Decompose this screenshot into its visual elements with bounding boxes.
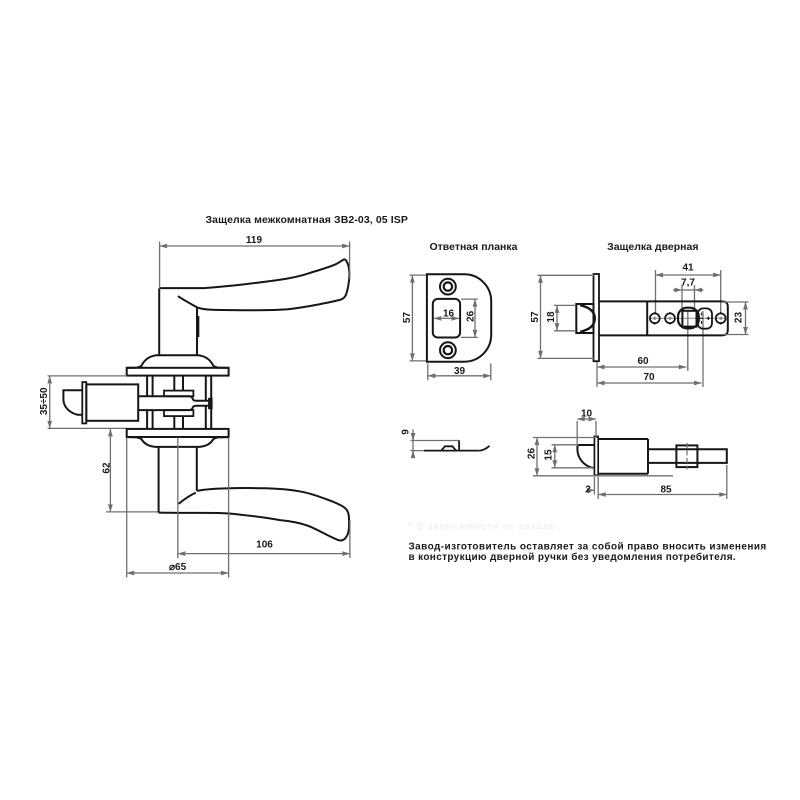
svg-text:⌀65: ⌀65: [169, 562, 187, 573]
svg-text:106: 106: [256, 540, 273, 551]
svg-text:39: 39: [454, 366, 466, 377]
svg-text:15: 15: [544, 449, 555, 461]
svg-text:41: 41: [682, 262, 694, 273]
svg-text:Завод-изготовитель оставляет з: Завод-изготовитель оставляет за собой пр…: [409, 540, 767, 552]
svg-text:62: 62: [101, 462, 112, 474]
svg-text:16: 16: [443, 308, 455, 319]
svg-text:57: 57: [402, 312, 413, 324]
svg-text:Защелка межкомнатная ЗВ2-03, 0: Защелка межкомнатная ЗВ2-03, 05 ISP: [206, 214, 408, 226]
svg-text:57: 57: [530, 311, 541, 323]
svg-text:85: 85: [660, 484, 672, 495]
svg-text:26: 26: [466, 310, 477, 322]
svg-text:в конструкцию дверной ручки бе: в конструкцию дверной ручки без уведомле…: [409, 551, 737, 563]
svg-text:9: 9: [401, 429, 412, 435]
svg-text:2: 2: [585, 485, 591, 496]
svg-text:35÷50: 35÷50: [39, 387, 50, 415]
svg-text:Ответная планка: Ответная планка: [430, 241, 518, 253]
svg-text:23: 23: [734, 312, 745, 324]
svg-text:26: 26: [527, 448, 538, 460]
svg-text:Защелка дверная: Защелка дверная: [607, 241, 698, 253]
svg-text:119: 119: [246, 235, 263, 246]
svg-text:7,7: 7,7: [681, 278, 695, 289]
svg-text:70: 70: [643, 372, 655, 383]
svg-text:60: 60: [637, 356, 649, 367]
svg-text:* В зависимости от заказа: * В зависимости от заказа: [408, 522, 554, 533]
svg-text:18: 18: [546, 311, 557, 323]
svg-text:10: 10: [581, 408, 593, 419]
